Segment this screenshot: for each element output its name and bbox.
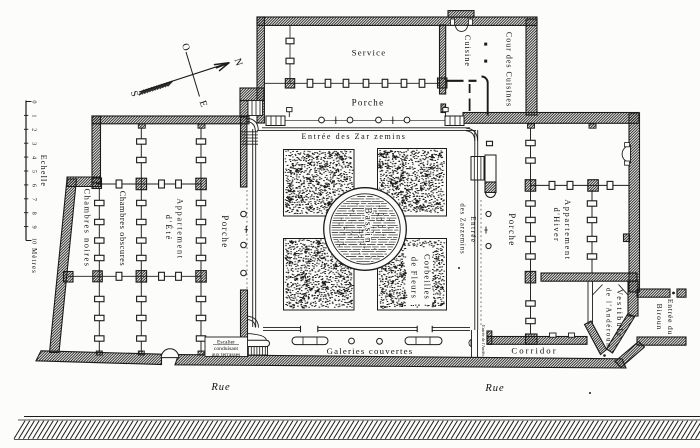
svg-text:Appartement: Appartement — [563, 199, 572, 260]
svg-text:de l'Andéroun: de l'Andéroun — [605, 288, 613, 348]
svg-text:Service: Service — [352, 48, 387, 58]
svg-text:Entrée des Zar zemins: Entrée des Zar zemins — [302, 132, 407, 141]
svg-text:Echelle: Echelle — [39, 155, 48, 187]
svg-text:3: 3 — [31, 142, 38, 145]
svg-text:Porche: Porche — [220, 215, 230, 248]
svg-text:Biroun: Biroun — [655, 304, 664, 331]
svg-text:Porche: Porche — [507, 213, 517, 246]
svg-text:Galeries couvertes: Galeries couvertes — [327, 346, 414, 356]
svg-text:10: 10 — [31, 238, 38, 244]
svg-text:Vestibule: Vestibule — [615, 289, 624, 339]
svg-text:Bassin: Bassin — [363, 207, 373, 244]
svg-text:Entrée: Entrée — [469, 216, 476, 243]
svg-text:Mètres: Mètres — [30, 248, 38, 274]
svg-text:Appartement: Appartement — [176, 198, 185, 259]
svg-text:Chambres obscures: Chambres obscures — [118, 191, 127, 267]
svg-text:Porche: Porche — [352, 98, 385, 108]
svg-text:Rue: Rue — [484, 383, 504, 394]
svg-text:aux terrasses: aux terrasses — [212, 352, 241, 358]
svg-text:5: 5 — [31, 170, 38, 173]
svg-text:2: 2 — [31, 128, 38, 131]
svg-text:Chambres noires: Chambres noires — [83, 188, 92, 267]
svg-text:7: 7 — [31, 198, 38, 201]
svg-text:Cuisine: Cuisine — [463, 35, 472, 67]
svg-text:d'Été: d'Été — [164, 215, 174, 241]
svg-text:des Zarzemins: des Zarzemins — [459, 203, 466, 254]
svg-text:Corridor: Corridor — [511, 346, 557, 356]
svg-text:Entrée de l'Andér.: Entrée de l'Andér. — [481, 325, 486, 357]
svg-text:8: 8 — [31, 212, 38, 215]
svg-text:Entrée du: Entrée du — [666, 299, 675, 335]
svg-text:Corbeilles: Corbeilles — [423, 254, 433, 300]
svg-text:9: 9 — [31, 226, 38, 229]
svg-text:de Fleurs: de Fleurs — [410, 257, 420, 299]
svg-text:Rue: Rue — [210, 382, 230, 393]
svg-text:d'Hiver: d'Hiver — [552, 208, 561, 243]
svg-text:6: 6 — [31, 184, 38, 187]
svg-text:Cour des Cuisines: Cour des Cuisines — [505, 32, 514, 107]
svg-text:0: 0 — [31, 100, 38, 103]
svg-text:1: 1 — [31, 114, 38, 117]
